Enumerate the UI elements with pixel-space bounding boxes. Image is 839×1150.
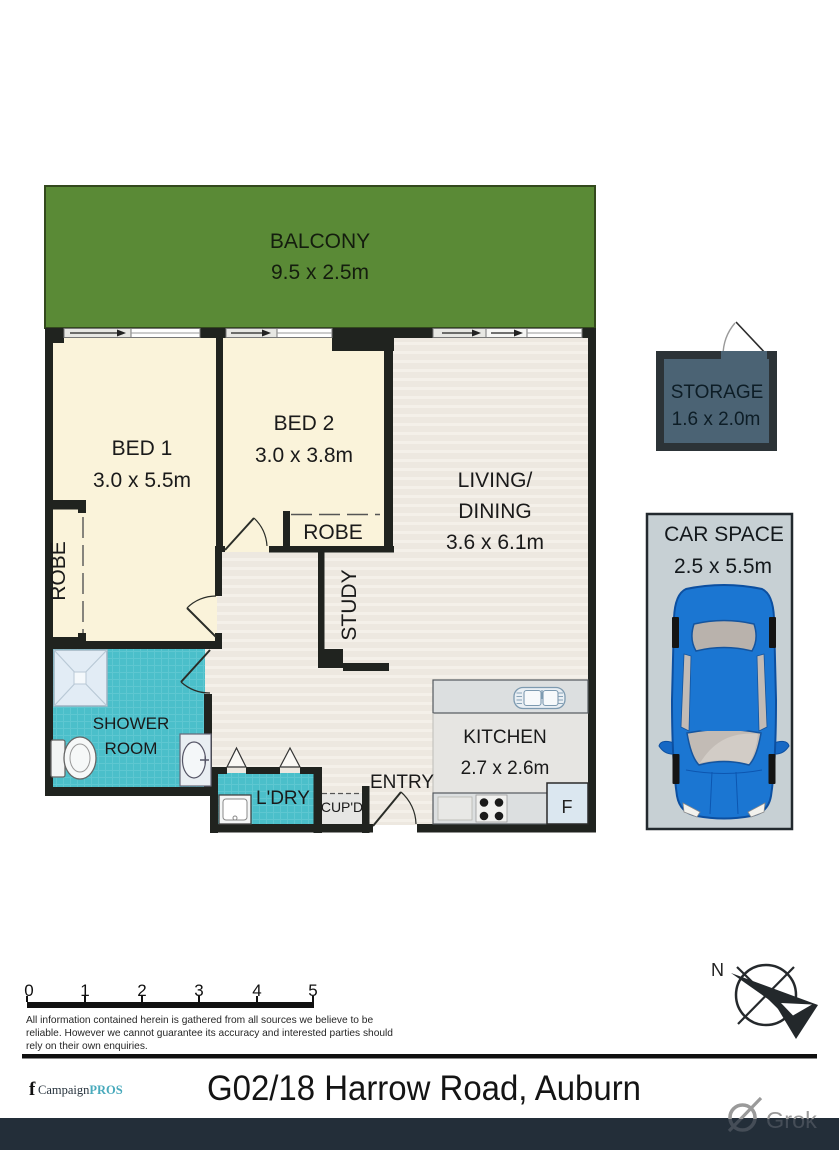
svg-text:3: 3 (194, 981, 203, 1000)
svg-text:ROBE: ROBE (47, 541, 70, 601)
svg-text:BED 2: BED 2 (274, 412, 335, 435)
svg-text:5: 5 (308, 981, 317, 1000)
svg-text:3.0 x 3.8m: 3.0 x 3.8m (255, 444, 353, 467)
svg-text:1: 1 (80, 981, 89, 1000)
svg-text:CampaignPROS: CampaignPROS (38, 1083, 123, 1097)
svg-text:SHOWER: SHOWER (93, 714, 170, 733)
svg-text:CUP'D: CUP'D (321, 799, 363, 815)
svg-text:F: F (562, 797, 573, 817)
svg-text:rely on their own enquiries.: rely on their own enquiries. (26, 1041, 148, 1052)
svg-text:KITCHEN: KITCHEN (463, 727, 546, 748)
svg-text:9.5 x 2.5m: 9.5 x 2.5m (271, 261, 369, 284)
svg-text:BED 1: BED 1 (112, 437, 173, 460)
svg-text:BALCONY: BALCONY (270, 230, 370, 253)
svg-text:STUDY: STUDY (338, 569, 361, 640)
svg-text:0: 0 (24, 981, 33, 1000)
svg-text:ROBE: ROBE (303, 521, 363, 544)
svg-text:reliable. However we cannot gu: reliable. However we cannot guarantee it… (26, 1028, 393, 1039)
svg-text:STORAGE: STORAGE (671, 382, 764, 403)
svg-text:2.7 x 2.6m: 2.7 x 2.6m (461, 758, 550, 779)
svg-text:All information contained here: All information contained herein is gath… (26, 1015, 373, 1026)
svg-text:3.0 x 5.5m: 3.0 x 5.5m (93, 469, 191, 492)
svg-text:L'DRY: L'DRY (256, 788, 310, 809)
svg-text:LIVING/: LIVING/ (458, 469, 533, 492)
svg-text:N: N (711, 960, 724, 980)
svg-text:1.6 x 2.0m: 1.6 x 2.0m (672, 409, 761, 430)
svg-text:ENTRY: ENTRY (370, 772, 434, 793)
svg-text:ROOM: ROOM (105, 739, 158, 758)
svg-text:4: 4 (252, 981, 261, 1000)
svg-text:f: f (29, 1079, 36, 1100)
svg-text:2: 2 (137, 981, 146, 1000)
svg-text:CAR SPACE: CAR SPACE (664, 523, 784, 546)
svg-text:DINING: DINING (458, 500, 532, 523)
svg-text:2.5 x 5.5m: 2.5 x 5.5m (674, 555, 772, 578)
svg-text:3.6 x 6.1m: 3.6 x 6.1m (446, 531, 544, 554)
svg-text:G02/18 Harrow Road, Auburn: G02/18 Harrow Road, Auburn (207, 1069, 641, 1108)
